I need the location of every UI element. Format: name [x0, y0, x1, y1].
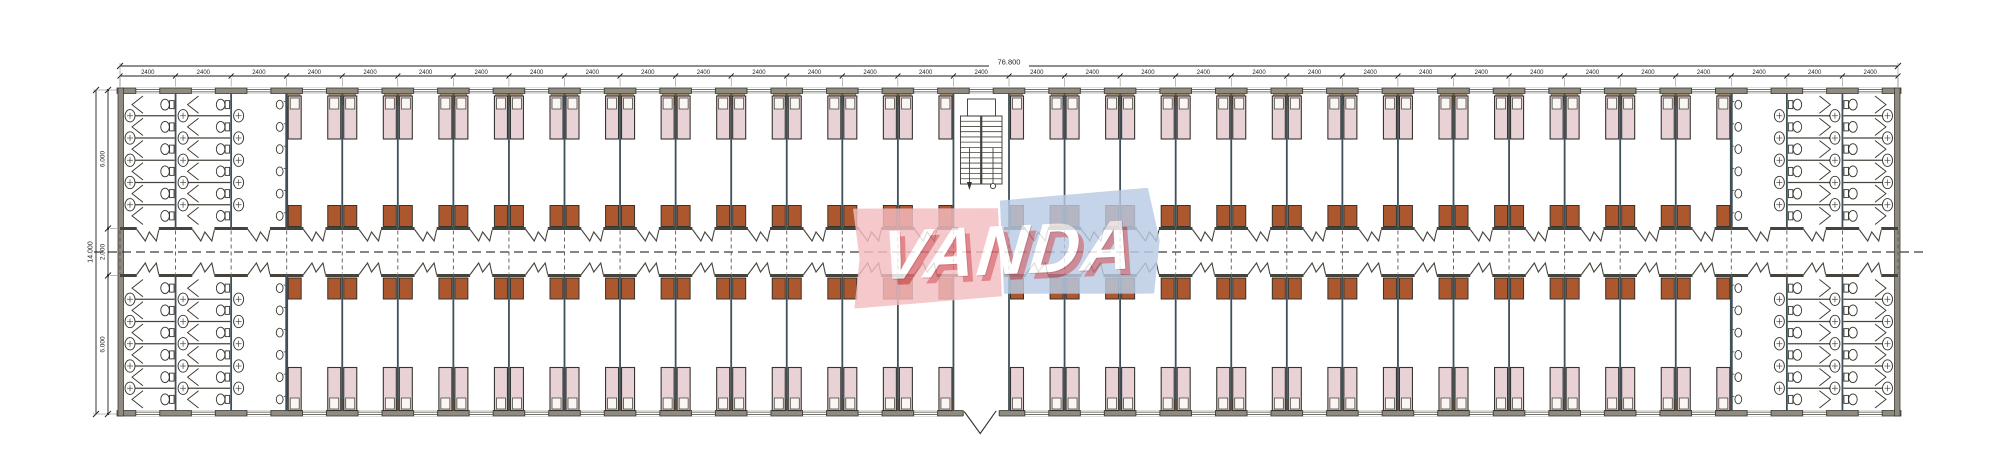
- door-swing-symbol: [1637, 263, 1659, 275]
- toilet-symbol: [225, 167, 230, 175]
- pillow-symbol: [1441, 98, 1450, 109]
- cabinet-symbol: [439, 206, 452, 227]
- pillow-symbol: [735, 398, 744, 409]
- door-swing-symbol: [1859, 263, 1881, 275]
- urinal-symbol: [1735, 145, 1742, 154]
- window-symbol: [1303, 410, 1327, 416]
- pillow-symbol: [1624, 98, 1633, 109]
- stall-door-swing: [188, 185, 199, 202]
- cabinet-symbol: [899, 278, 912, 299]
- cabinet-symbol: [1106, 206, 1119, 227]
- cabinet-symbol: [717, 278, 730, 299]
- toilet-symbol: [1793, 121, 1802, 132]
- pillow-symbol: [830, 398, 839, 409]
- pillow-symbol: [1552, 398, 1561, 409]
- cabinet-symbol: [1066, 206, 1079, 227]
- dimension-label: 2400: [752, 70, 766, 76]
- toilet-symbol: [1788, 284, 1793, 292]
- dimension-label: 2400: [141, 70, 155, 76]
- toilet-symbol: [225, 145, 230, 153]
- dimension-label: 2400: [586, 70, 600, 76]
- window-symbol: [358, 410, 382, 416]
- cabinet-symbol: [733, 278, 746, 299]
- door-swing-symbol: [748, 263, 770, 275]
- toilet-symbol: [216, 121, 225, 132]
- window-symbol: [858, 88, 882, 94]
- pillow-symbol: [512, 98, 521, 109]
- urinal-symbol: [276, 167, 283, 176]
- cabinet-symbol: [677, 206, 690, 227]
- cabinet-symbol: [1677, 206, 1690, 227]
- toilet-symbol: [225, 101, 230, 109]
- toilet-symbol: [1793, 327, 1802, 338]
- toilet-symbol: [1844, 190, 1849, 198]
- toilet-symbol: [1793, 349, 1802, 360]
- window-symbol: [1358, 410, 1382, 416]
- door-swing-symbol: [1581, 263, 1603, 275]
- toilet-symbol: [1844, 373, 1849, 381]
- pillow-symbol: [1068, 398, 1077, 409]
- door-swing-symbol: [692, 230, 714, 242]
- toilet-symbol: [170, 123, 175, 131]
- toilet-symbol: [1844, 212, 1849, 220]
- door-swing-symbol: [1581, 230, 1603, 242]
- cabinet-symbol: [383, 278, 396, 299]
- stall-door-swing: [1819, 96, 1830, 113]
- toilet-symbol: [1793, 210, 1802, 221]
- toilet-symbol: [1788, 395, 1793, 403]
- stall-door-swing: [132, 302, 143, 319]
- cabinet-symbol: [1233, 206, 1246, 227]
- pillow-symbol: [1163, 98, 1172, 109]
- door-swing-symbol: [1470, 263, 1492, 275]
- urinal-symbol: [276, 328, 283, 337]
- window-symbol: [136, 88, 160, 94]
- dimension-label: 2400: [1086, 70, 1100, 76]
- toilet-symbol: [170, 145, 175, 153]
- cabinet-symbol: [1661, 206, 1674, 227]
- pillow-symbol: [608, 398, 617, 409]
- door-swing-symbol: [1192, 230, 1214, 242]
- pillow-symbol: [1219, 98, 1228, 109]
- urinal-symbol: [1735, 395, 1742, 404]
- cabinet-symbol: [1550, 206, 1563, 227]
- door-swing-symbol: [637, 230, 659, 242]
- window-symbol: [1636, 88, 1660, 94]
- door-swing-symbol: [1693, 263, 1715, 275]
- dimension-label: 2400: [1030, 70, 1044, 76]
- pillow-symbol: [401, 98, 410, 109]
- pillow-symbol: [496, 98, 505, 109]
- pillow-symbol: [552, 398, 561, 409]
- door-swing-symbol: [248, 263, 270, 275]
- cabinet-symbol: [1066, 278, 1079, 299]
- cabinet-symbol: [1661, 278, 1674, 299]
- pillow-symbol: [1235, 98, 1244, 109]
- dimension-label: 2400: [1864, 70, 1878, 76]
- door-swing-symbol: [415, 263, 437, 275]
- urinal-symbol: [276, 211, 283, 220]
- door-swing-symbol: [1359, 230, 1381, 242]
- door-swing-symbol: [303, 263, 325, 275]
- cabinet-symbol: [1717, 278, 1730, 299]
- stall-door-swing: [188, 141, 199, 158]
- window-symbol: [136, 410, 160, 416]
- pillow-symbol: [1663, 98, 1672, 109]
- cabinet-symbol: [1288, 206, 1301, 227]
- toilet-symbol: [1849, 305, 1858, 316]
- urinal-symbol: [276, 373, 283, 382]
- door-swing-symbol: [804, 230, 826, 242]
- cabinet-symbol: [1399, 206, 1412, 227]
- door-swing-symbol: [1248, 230, 1270, 242]
- toilet-symbol: [216, 349, 225, 360]
- urinal-symbol: [276, 350, 283, 359]
- pillow-symbol: [1124, 98, 1133, 109]
- toilet-symbol: [170, 284, 175, 292]
- cabinet-symbol: [622, 206, 635, 227]
- stall-door-swing: [1819, 302, 1830, 319]
- stall-door-swing: [132, 163, 143, 180]
- floor-plan-drawing: 76.8002400240024002400240024002400240024…: [0, 0, 2000, 474]
- toilet-symbol: [216, 210, 225, 221]
- cabinet-symbol: [788, 206, 801, 227]
- cabinet-symbol: [1106, 278, 1119, 299]
- pillow-symbol: [1346, 398, 1355, 409]
- pillow-symbol: [290, 98, 299, 109]
- urinal-symbol: [1735, 122, 1742, 131]
- cabinet-symbol: [510, 206, 523, 227]
- stall-door-swing: [1819, 346, 1830, 363]
- cabinet-symbol: [494, 278, 507, 299]
- door-swing-symbol: [1748, 263, 1770, 275]
- door-swing-symbol: [1248, 263, 1270, 275]
- toilet-symbol: [170, 329, 175, 337]
- toilet-symbol: [1788, 306, 1793, 314]
- window-symbol: [1080, 88, 1104, 94]
- pillow-symbol: [679, 398, 688, 409]
- dimension-label: 2400: [1808, 70, 1822, 76]
- window-symbol: [247, 410, 271, 416]
- cabinet-symbol: [939, 278, 952, 299]
- window-symbol: [1580, 88, 1604, 94]
- toilet-symbol: [161, 166, 170, 177]
- toilet-symbol: [1844, 167, 1849, 175]
- door-swing-symbol: [415, 230, 437, 242]
- window-symbol: [580, 410, 604, 416]
- toilet-symbol: [225, 329, 230, 337]
- cabinet-symbol: [1455, 206, 1468, 227]
- pillow-symbol: [1719, 398, 1728, 409]
- pillow-symbol: [385, 98, 394, 109]
- pillow-symbol: [941, 98, 950, 109]
- pillow-symbol: [1624, 398, 1633, 409]
- pillow-symbol: [790, 98, 799, 109]
- window-symbol: [580, 88, 604, 94]
- pillow-symbol: [1513, 398, 1522, 409]
- cabinet-symbol: [288, 278, 301, 299]
- pillow-symbol: [1568, 398, 1577, 409]
- toilet-symbol: [1793, 144, 1802, 155]
- urinal-symbol: [276, 284, 283, 293]
- pillow-symbol: [719, 398, 728, 409]
- window-symbol: [1247, 88, 1271, 94]
- cabinet-symbol: [439, 278, 452, 299]
- pillow-symbol: [1052, 98, 1061, 109]
- door-swing-symbol: [1748, 230, 1770, 242]
- cabinet-symbol: [1550, 278, 1563, 299]
- toilet-symbol: [225, 190, 230, 198]
- door-swing-symbol: [804, 263, 826, 275]
- toilet-symbol: [1849, 372, 1858, 383]
- pillow-symbol: [1219, 398, 1228, 409]
- toilet-symbol: [1849, 121, 1858, 132]
- window-symbol: [1692, 410, 1716, 416]
- pillow-symbol: [457, 98, 466, 109]
- toilet-symbol: [1849, 283, 1858, 294]
- pillow-symbol: [1497, 398, 1506, 409]
- cabinet-symbol: [1161, 206, 1174, 227]
- cabinet-symbol: [566, 206, 579, 227]
- stall-door-swing: [1819, 207, 1830, 224]
- cabinet-symbol: [1606, 206, 1619, 227]
- window-symbol: [858, 410, 882, 416]
- floor-plan-canvas: 76.8002400240024002400240024002400240024…: [0, 0, 2000, 474]
- pillow-symbol: [1401, 98, 1410, 109]
- door-swing-symbol: [303, 230, 325, 242]
- cabinet-symbol: [494, 206, 507, 227]
- stall-door-swing: [132, 185, 143, 202]
- pillow-symbol: [1608, 98, 1617, 109]
- stall-door-swing: [132, 207, 143, 224]
- dim-node: [107, 275, 109, 277]
- pillow-symbol: [1497, 98, 1506, 109]
- pillow-symbol: [1124, 398, 1133, 409]
- window-symbol: [1469, 410, 1493, 416]
- pillow-symbol: [624, 398, 633, 409]
- pillow-symbol: [1108, 98, 1117, 109]
- pillow-symbol: [830, 98, 839, 109]
- toilet-symbol: [170, 373, 175, 381]
- toilet-symbol: [1844, 101, 1849, 109]
- urinal-symbol: [276, 100, 283, 109]
- stall-door-swing: [188, 302, 199, 319]
- dimension-label: 6.000: [100, 150, 107, 167]
- toilet-symbol: [1788, 145, 1793, 153]
- window-symbol: [1303, 88, 1327, 94]
- cabinet-symbol: [550, 206, 563, 227]
- pillow-symbol: [1568, 98, 1577, 109]
- toilet-symbol: [161, 99, 170, 110]
- window-symbol: [1136, 410, 1160, 416]
- stall-door-swing: [188, 369, 199, 386]
- cabinet-symbol: [1177, 278, 1190, 299]
- toilet-symbol: [161, 188, 170, 199]
- urinal-symbol: [1735, 284, 1742, 293]
- dimension-label: 2400: [1752, 70, 1766, 76]
- pillow-symbol: [1290, 98, 1299, 109]
- window-symbol: [1580, 410, 1604, 416]
- dimension-label: 2400: [1530, 70, 1544, 76]
- dimension-label: 2400: [363, 70, 377, 76]
- stall-door-swing: [132, 391, 143, 408]
- cabinet-symbol: [455, 206, 468, 227]
- toilet-symbol: [1793, 305, 1802, 316]
- door-swing-symbol: [1304, 263, 1326, 275]
- cabinet-symbol: [677, 278, 690, 299]
- window-symbol: [302, 88, 326, 94]
- window-symbol: [1858, 410, 1882, 416]
- cabinet-symbol: [788, 278, 801, 299]
- dimension-label: 2400: [863, 70, 877, 76]
- window-symbol: [691, 410, 715, 416]
- door-swing-symbol: [1081, 263, 1103, 275]
- toilet-symbol: [161, 394, 170, 405]
- stall-door-swing: [1819, 324, 1830, 341]
- bottom-wall: [117, 411, 1901, 417]
- toilet-symbol: [161, 372, 170, 383]
- dimension-label: 2400: [1586, 70, 1600, 76]
- window-symbol: [1414, 88, 1438, 94]
- cabinet-symbol: [328, 206, 341, 227]
- stall-door-swing: [1819, 118, 1830, 135]
- toilet-symbol: [1788, 123, 1793, 131]
- pillow-symbol: [1163, 398, 1172, 409]
- pillow-symbol: [552, 98, 561, 109]
- urinal-symbol: [1735, 328, 1742, 337]
- window-symbol: [1247, 410, 1271, 416]
- window-symbol: [1191, 410, 1215, 416]
- pillow-symbol: [346, 398, 355, 409]
- door-swing-symbol: [1192, 263, 1214, 275]
- toilet-symbol: [1849, 99, 1858, 110]
- cabinet-symbol: [883, 206, 896, 227]
- toilet-symbol: [1788, 190, 1793, 198]
- urinal-symbol: [1735, 373, 1742, 382]
- toilet-symbol: [1793, 283, 1802, 294]
- pillow-symbol: [846, 98, 855, 109]
- pillow-symbol: [1401, 398, 1410, 409]
- pillow-symbol: [1552, 98, 1561, 109]
- pillow-symbol: [790, 398, 799, 409]
- pillow-symbol: [901, 98, 910, 109]
- toilet-symbol: [161, 210, 170, 221]
- cabinet-symbol: [288, 206, 301, 227]
- pillow-symbol: [1179, 398, 1188, 409]
- pillow-symbol: [568, 98, 577, 109]
- cabinet-symbol: [1011, 278, 1024, 299]
- pillow-symbol: [1679, 398, 1688, 409]
- stall-door-swing: [188, 280, 199, 297]
- pillow-symbol: [441, 98, 450, 109]
- cabinet-symbol: [1383, 278, 1396, 299]
- window-symbol: [525, 410, 549, 416]
- toilet-symbol: [216, 327, 225, 338]
- dimension-label: 2400: [1697, 70, 1711, 76]
- pillow-symbol: [1608, 398, 1617, 409]
- window-symbol: [803, 88, 827, 94]
- window-symbol: [1747, 410, 1771, 416]
- pillow-symbol: [1290, 398, 1299, 409]
- toilet-symbol: [1844, 395, 1849, 403]
- door-swing-symbol: [359, 230, 381, 242]
- cabinet-symbol: [1622, 206, 1635, 227]
- window-symbol: [525, 88, 549, 94]
- cabinet-symbol: [1383, 206, 1396, 227]
- pillow-symbol: [885, 98, 894, 109]
- urinal-symbol: [276, 145, 283, 154]
- dimension-label: 14.000: [88, 241, 95, 263]
- dim-node: [107, 228, 109, 230]
- door-swing-symbol: [1526, 230, 1548, 242]
- window-symbol: [1358, 88, 1382, 94]
- dimension-label: 2400: [1197, 70, 1211, 76]
- toilet-symbol: [1793, 372, 1802, 383]
- cabinet-symbol: [844, 206, 857, 227]
- door-swing-symbol: [137, 230, 159, 242]
- pillow-symbol: [1274, 98, 1283, 109]
- cabinet-symbol: [1177, 206, 1190, 227]
- cabinet-symbol: [383, 206, 396, 227]
- toilet-symbol: [216, 283, 225, 294]
- cabinet-symbol: [899, 206, 912, 227]
- cabinet-symbol: [1272, 206, 1285, 227]
- urinal-symbol: [1735, 100, 1742, 109]
- door-swing-symbol: [1304, 230, 1326, 242]
- toilet-symbol: [170, 101, 175, 109]
- toilet-symbol: [1844, 306, 1849, 314]
- toilet-symbol: [225, 123, 230, 131]
- pillow-symbol: [1235, 398, 1244, 409]
- urinal-symbol: [1735, 189, 1742, 198]
- toilet-symbol: [1788, 329, 1793, 337]
- cabinet-symbol: [1717, 206, 1730, 227]
- cabinet-symbol: [1439, 206, 1452, 227]
- cabinet-symbol: [939, 206, 952, 227]
- urinal-symbol: [1735, 350, 1742, 359]
- door-swing-symbol: [1804, 230, 1826, 242]
- pillow-symbol: [719, 98, 728, 109]
- toilet-symbol: [170, 306, 175, 314]
- dimension-label: 76.800: [998, 58, 1021, 67]
- door-swing-symbol: [1637, 230, 1659, 242]
- cabinet-symbol: [1455, 278, 1468, 299]
- toilet-symbol: [216, 144, 225, 155]
- pillow-symbol: [1330, 398, 1339, 409]
- corridor: [94, 229, 1924, 276]
- pillow-symbol: [330, 398, 339, 409]
- cabinet-symbol: [1217, 278, 1230, 299]
- cabinet-symbol: [1495, 206, 1508, 227]
- pillow-symbol: [1719, 98, 1728, 109]
- toilet-symbol: [161, 349, 170, 360]
- pillow-symbol: [774, 398, 783, 409]
- window-symbol: [358, 88, 382, 94]
- toilet-symbol: [216, 372, 225, 383]
- pillow-symbol: [568, 398, 577, 409]
- toilet-symbol: [1793, 166, 1802, 177]
- window-symbol: [1803, 88, 1827, 94]
- pillow-symbol: [1108, 398, 1117, 409]
- window-symbol: [414, 88, 438, 94]
- window-symbol: [1191, 88, 1215, 94]
- door-swing-symbol: [470, 263, 492, 275]
- dimension-label: 6.000: [100, 336, 107, 353]
- door-swing-symbol: [859, 230, 881, 242]
- toilet-symbol: [225, 306, 230, 314]
- cabinet-symbol: [828, 206, 841, 227]
- window-symbol: [1025, 88, 1049, 94]
